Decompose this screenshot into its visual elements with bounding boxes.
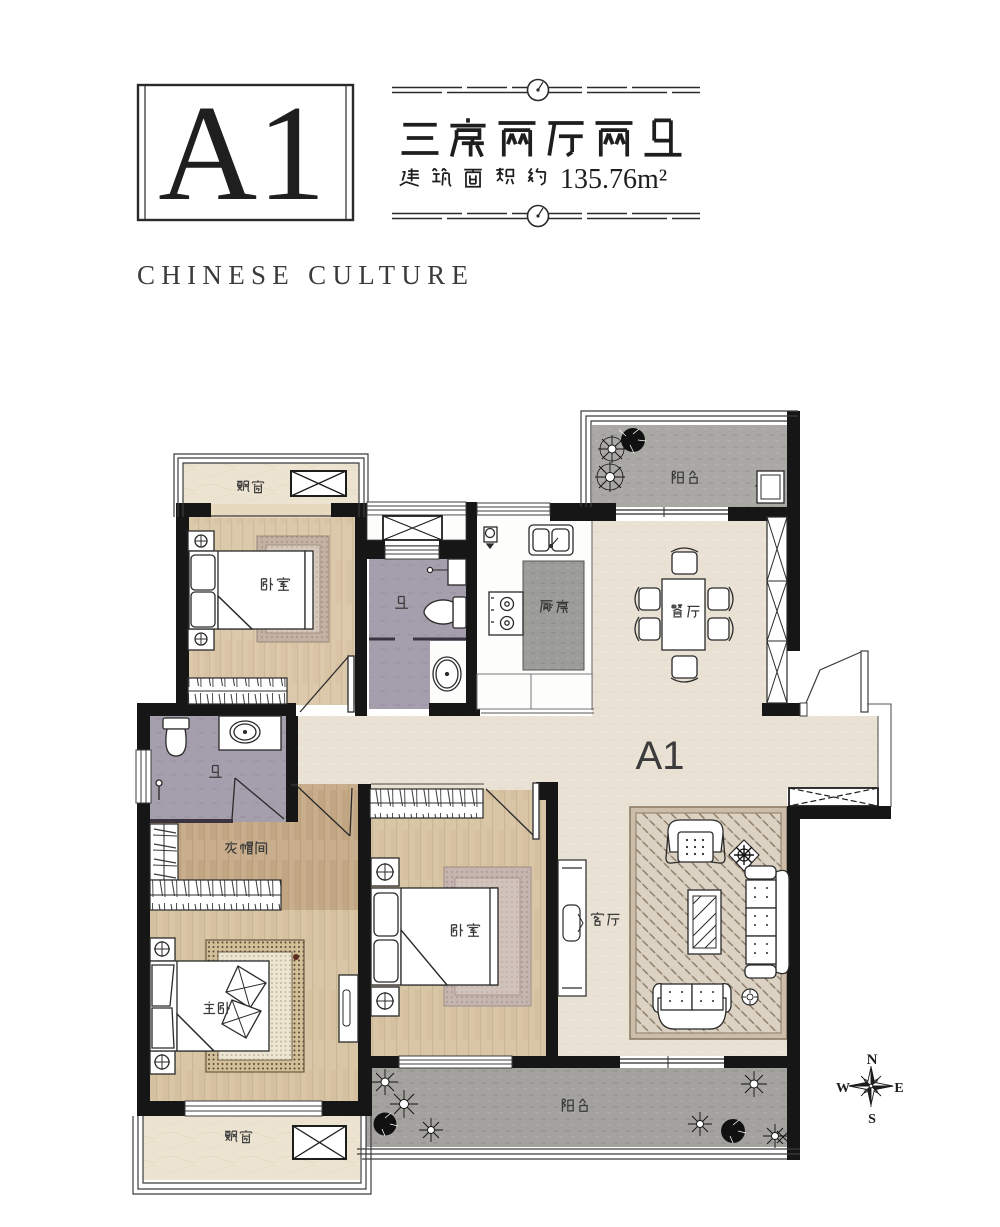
svg-text:E: E: [894, 1081, 903, 1096]
svg-text:135.76m²: 135.76m²: [560, 164, 667, 195]
svg-text:A1: A1: [158, 77, 325, 229]
svg-text:A1: A1: [636, 734, 685, 778]
svg-text:W: W: [836, 1081, 850, 1096]
svg-text:S: S: [868, 1112, 876, 1127]
svg-text:N: N: [867, 1052, 878, 1068]
svg-text:CHINESE CULTURE: CHINESE CULTURE: [137, 260, 474, 290]
